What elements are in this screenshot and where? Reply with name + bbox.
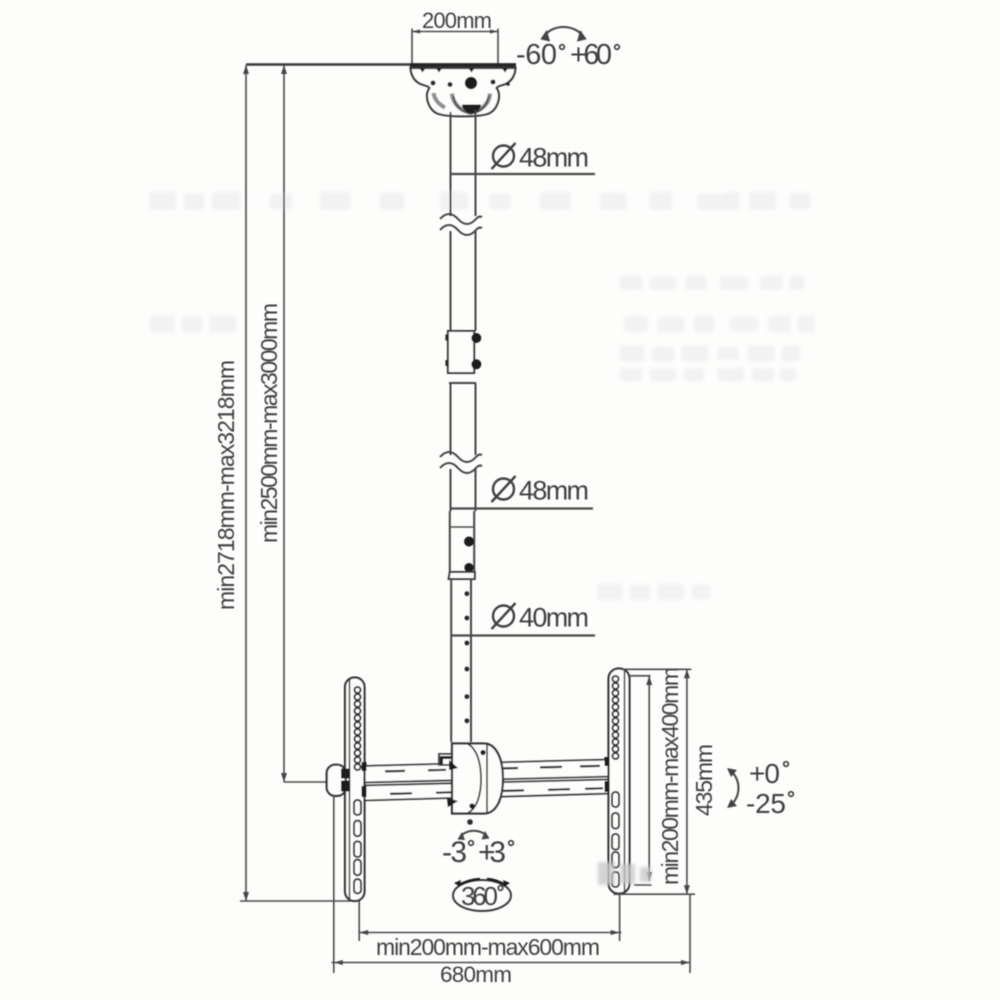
svg-text:min200mm-max400mm: min200mm-max400mm (657, 667, 683, 885)
svg-text:680mm: 680mm (440, 962, 512, 987)
svg-text:360: 360 (461, 881, 498, 911)
svg-text:min200mm-max600mm: min200mm-max600mm (376, 934, 600, 960)
svg-text:min2500mm-max3000mm: min2500mm-max3000mm (256, 303, 282, 543)
svg-text:min2718mm-max3218mm: min2718mm-max3218mm (213, 360, 239, 610)
svg-text:+3: +3 (478, 836, 506, 869)
svg-text:+60: +60 (570, 39, 612, 71)
svg-text:48mm: 48mm (519, 143, 589, 173)
svg-text:200mm: 200mm (422, 8, 492, 33)
svg-text:40mm: 40mm (519, 603, 589, 633)
svg-text:435mm: 435mm (691, 744, 717, 816)
svg-text:-3: -3 (442, 836, 467, 869)
svg-text:-60: -60 (516, 39, 557, 71)
svg-text:48mm: 48mm (519, 476, 589, 506)
svg-text:+0: +0 (749, 758, 780, 789)
svg-text:-25: -25 (746, 788, 786, 819)
